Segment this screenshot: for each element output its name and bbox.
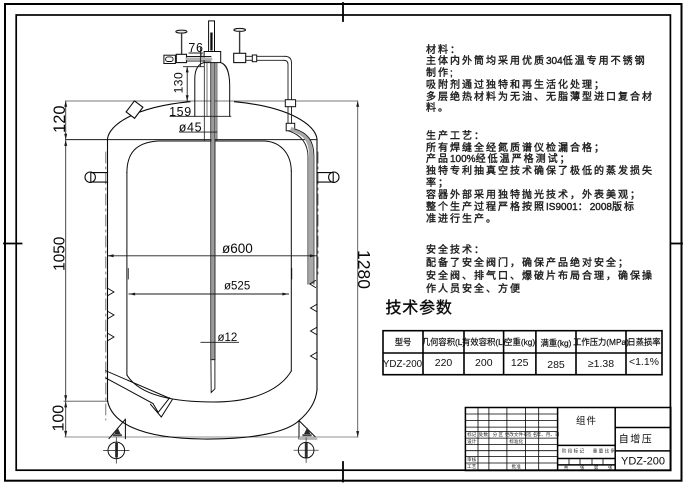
svg-text:分 区: 分 区 (493, 431, 504, 438)
svg-text:处数: 处数 (479, 431, 489, 438)
svg-text:审核: 审核 (467, 456, 477, 463)
svg-text:组件: 组件 (576, 415, 597, 427)
svg-text:比 例: 比 例 (605, 448, 616, 455)
svg-text:工艺: 工艺 (467, 464, 477, 469)
svg-text:批准: 批准 (512, 463, 522, 470)
svg-text:YDZ-200: YDZ-200 (621, 456, 665, 468)
svg-text:张: 张 (608, 464, 613, 471)
svg-text:自增压: 自增压 (619, 433, 654, 446)
svg-text:第: 第 (594, 464, 599, 471)
svg-text:阶 段 标 记: 阶 段 标 记 (562, 448, 585, 455)
svg-text:标记: 标记 (467, 431, 477, 438)
svg-text:更改文件号: 更改文件号 (505, 431, 528, 438)
svg-text:重 量: 重 量 (593, 448, 604, 455)
svg-text:共: 共 (564, 464, 569, 471)
svg-text:标准化: 标准化 (509, 438, 523, 445)
svg-text:年、月、日: 年、月、日 (537, 431, 560, 438)
svg-text:设计: 设计 (467, 438, 477, 445)
svg-text:张: 张 (580, 464, 585, 471)
